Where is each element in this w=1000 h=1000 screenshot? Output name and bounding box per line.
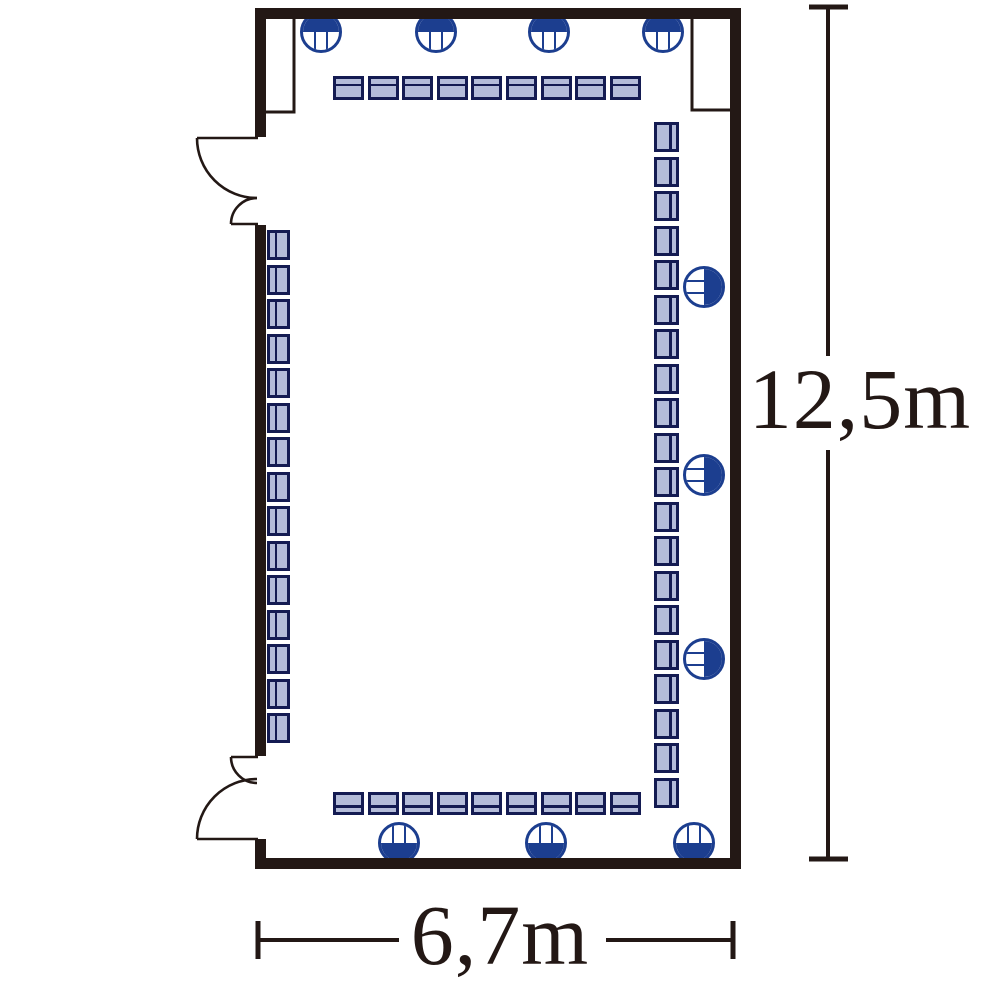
round-chair-line	[554, 31, 557, 51]
round-chair-line	[685, 480, 704, 483]
round-chair-line	[326, 31, 329, 51]
chair	[654, 536, 679, 566]
chair	[368, 76, 399, 100]
chair	[654, 191, 679, 221]
chair-backrest	[336, 805, 361, 808]
chair-backrest	[275, 475, 278, 499]
width-dimension-label: 6,7m	[388, 892, 612, 978]
chair	[506, 792, 537, 815]
chair-backrest	[275, 716, 278, 740]
chair-backrest	[509, 84, 534, 87]
round-chair-line	[685, 292, 704, 295]
chair	[267, 403, 290, 433]
chair-backrest	[669, 505, 672, 529]
chair	[267, 610, 290, 640]
chair-backrest	[669, 367, 672, 391]
chair	[575, 76, 606, 100]
chair	[402, 76, 433, 100]
chair-backrest	[405, 805, 430, 808]
chair-backrest	[544, 805, 569, 808]
chair	[575, 792, 606, 815]
chair	[654, 329, 679, 359]
chair	[654, 571, 679, 601]
round-chair-line	[542, 31, 545, 51]
round-chair-line	[404, 824, 407, 843]
chair-backrest	[275, 371, 278, 395]
chair	[267, 368, 290, 398]
chair-backrest	[275, 440, 278, 464]
chair-backrest	[669, 608, 672, 632]
chair-backrest	[669, 160, 672, 184]
chair	[506, 76, 537, 100]
chair-backrest	[669, 781, 672, 805]
chair	[402, 792, 433, 815]
chair-backrest	[275, 647, 278, 671]
chair-backrest	[669, 539, 672, 563]
round-chair-line	[685, 280, 704, 283]
chair-backrest	[440, 84, 465, 87]
chair	[471, 792, 502, 815]
round-chair-line	[656, 31, 659, 51]
chair	[654, 674, 679, 704]
chair	[654, 605, 679, 635]
chair	[267, 334, 290, 364]
chair	[654, 778, 679, 808]
chair-backrest	[578, 84, 603, 87]
chair-backrest	[275, 233, 278, 257]
chair	[471, 76, 502, 100]
chair	[654, 398, 679, 428]
chair-backrest	[275, 406, 278, 430]
chair-backrest	[669, 677, 672, 701]
round-chair-line	[699, 824, 702, 843]
round-chair-icon	[683, 266, 725, 308]
round-chair-line	[441, 31, 444, 51]
chair	[267, 506, 290, 536]
floor-plan: 12,5m 6,7m	[0, 0, 1000, 1000]
chair-backrest	[669, 470, 672, 494]
chair-backrest	[578, 805, 603, 808]
chair-backrest	[669, 194, 672, 218]
chair	[610, 76, 641, 100]
chair-backrest	[275, 268, 278, 292]
chair	[541, 792, 572, 815]
chair	[437, 792, 468, 815]
round-chair-line	[314, 31, 317, 51]
round-chair-back	[527, 843, 565, 862]
chair	[267, 299, 290, 329]
chair	[654, 364, 679, 394]
round-chair-icon	[673, 822, 715, 864]
chair-backrest	[669, 436, 672, 460]
chair-backrest	[474, 805, 499, 808]
chair	[654, 122, 679, 152]
chair-backrest	[669, 298, 672, 322]
round-chair-icon	[300, 11, 342, 53]
chair	[267, 713, 290, 743]
chair	[267, 472, 290, 502]
chair-backrest	[613, 84, 638, 87]
chair	[267, 230, 290, 260]
round-chair-line	[429, 31, 432, 51]
round-chair-back	[704, 640, 723, 678]
chair-backrest	[371, 805, 396, 808]
chair-backrest	[544, 84, 569, 87]
round-chair-back	[675, 843, 713, 862]
chair	[267, 265, 290, 295]
chair-backrest	[669, 574, 672, 598]
round-chair-line	[685, 664, 704, 667]
chair	[541, 76, 572, 100]
round-chair-icon	[415, 11, 457, 53]
chair	[333, 76, 364, 100]
chair-backrest	[669, 746, 672, 770]
height-dimension-label: 12,5m	[748, 356, 972, 442]
round-chair-icon	[525, 822, 567, 864]
chair-backrest	[275, 337, 278, 361]
chair	[654, 226, 679, 256]
chair	[654, 157, 679, 187]
chair-backrest	[669, 401, 672, 425]
chair	[368, 792, 399, 815]
round-chair-icon	[378, 822, 420, 864]
chair-backrest	[336, 84, 361, 87]
chair-backrest	[275, 509, 278, 533]
chair-backrest	[440, 805, 465, 808]
chair-backrest	[474, 84, 499, 87]
round-chair-line	[685, 652, 704, 655]
fixtures-layer	[0, 0, 1000, 1000]
chair-backrest	[613, 805, 638, 808]
round-chair-line	[687, 824, 690, 843]
round-chair-line	[539, 824, 542, 843]
chair-backrest	[275, 613, 278, 637]
chair	[267, 437, 290, 467]
chair	[654, 743, 679, 773]
chair-backrest	[669, 229, 672, 253]
chair	[654, 260, 679, 290]
round-chair-back	[704, 456, 723, 494]
chair-backrest	[669, 125, 672, 149]
chair	[267, 575, 290, 605]
chair	[267, 644, 290, 674]
round-chair-line	[551, 824, 554, 843]
chair-backrest	[669, 263, 672, 287]
round-chair-back	[644, 13, 682, 32]
chair-backrest	[275, 578, 278, 602]
round-chair-line	[685, 468, 704, 471]
round-chair-icon	[528, 11, 570, 53]
chair	[654, 433, 679, 463]
round-chair-back	[380, 843, 418, 862]
chair	[654, 640, 679, 670]
chair-backrest	[669, 712, 672, 736]
chair-backrest	[509, 805, 534, 808]
round-chair-back	[530, 13, 568, 32]
chair	[654, 295, 679, 325]
round-chair-back	[417, 13, 455, 32]
round-chair-icon	[683, 454, 725, 496]
chair	[654, 709, 679, 739]
round-chair-back	[302, 13, 340, 32]
chair	[267, 541, 290, 571]
chair-backrest	[275, 544, 278, 568]
chair-backrest	[405, 84, 430, 87]
chair-backrest	[669, 643, 672, 667]
round-chair-icon	[683, 638, 725, 680]
chair	[654, 467, 679, 497]
round-chair-icon	[642, 11, 684, 53]
chair-backrest	[275, 302, 278, 326]
chair	[610, 792, 641, 815]
chair-backrest	[275, 682, 278, 706]
chair	[267, 679, 290, 709]
round-chair-line	[668, 31, 671, 51]
chair-backrest	[669, 332, 672, 356]
chair-backrest	[371, 84, 396, 87]
round-chair-back	[704, 268, 723, 306]
round-chair-line	[392, 824, 395, 843]
chair	[437, 76, 468, 100]
chair	[654, 502, 679, 532]
chair	[333, 792, 364, 815]
